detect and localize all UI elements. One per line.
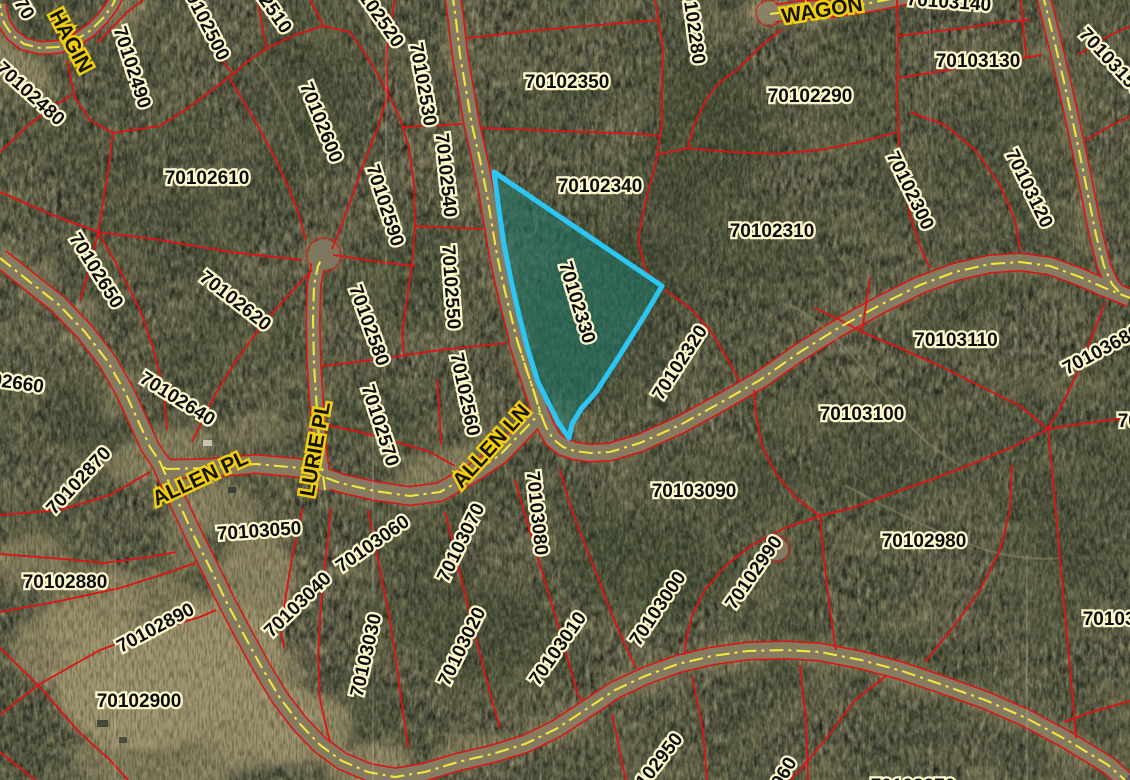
svg-text:70102350: 70102350 <box>525 72 610 93</box>
svg-text:70102970: 70102970 <box>871 776 956 780</box>
svg-text:70102980: 70102980 <box>882 531 967 552</box>
svg-text:70102310: 70102310 <box>730 221 815 242</box>
svg-text:70103950: 70103950 <box>1083 609 1130 630</box>
svg-text:70102880: 70102880 <box>23 572 108 593</box>
svg-text:70103130: 70103130 <box>936 51 1021 72</box>
svg-text:70102290: 70102290 <box>768 86 853 107</box>
svg-text:70103110: 70103110 <box>914 330 998 351</box>
svg-text:70103940: 70103940 <box>1118 411 1130 432</box>
svg-text:70103090: 70103090 <box>652 481 737 502</box>
svg-text:70102610: 70102610 <box>165 168 250 189</box>
svg-text:70103100: 70103100 <box>820 404 905 425</box>
svg-text:70102340: 70102340 <box>558 176 643 197</box>
svg-text:70102900: 70102900 <box>97 691 182 712</box>
